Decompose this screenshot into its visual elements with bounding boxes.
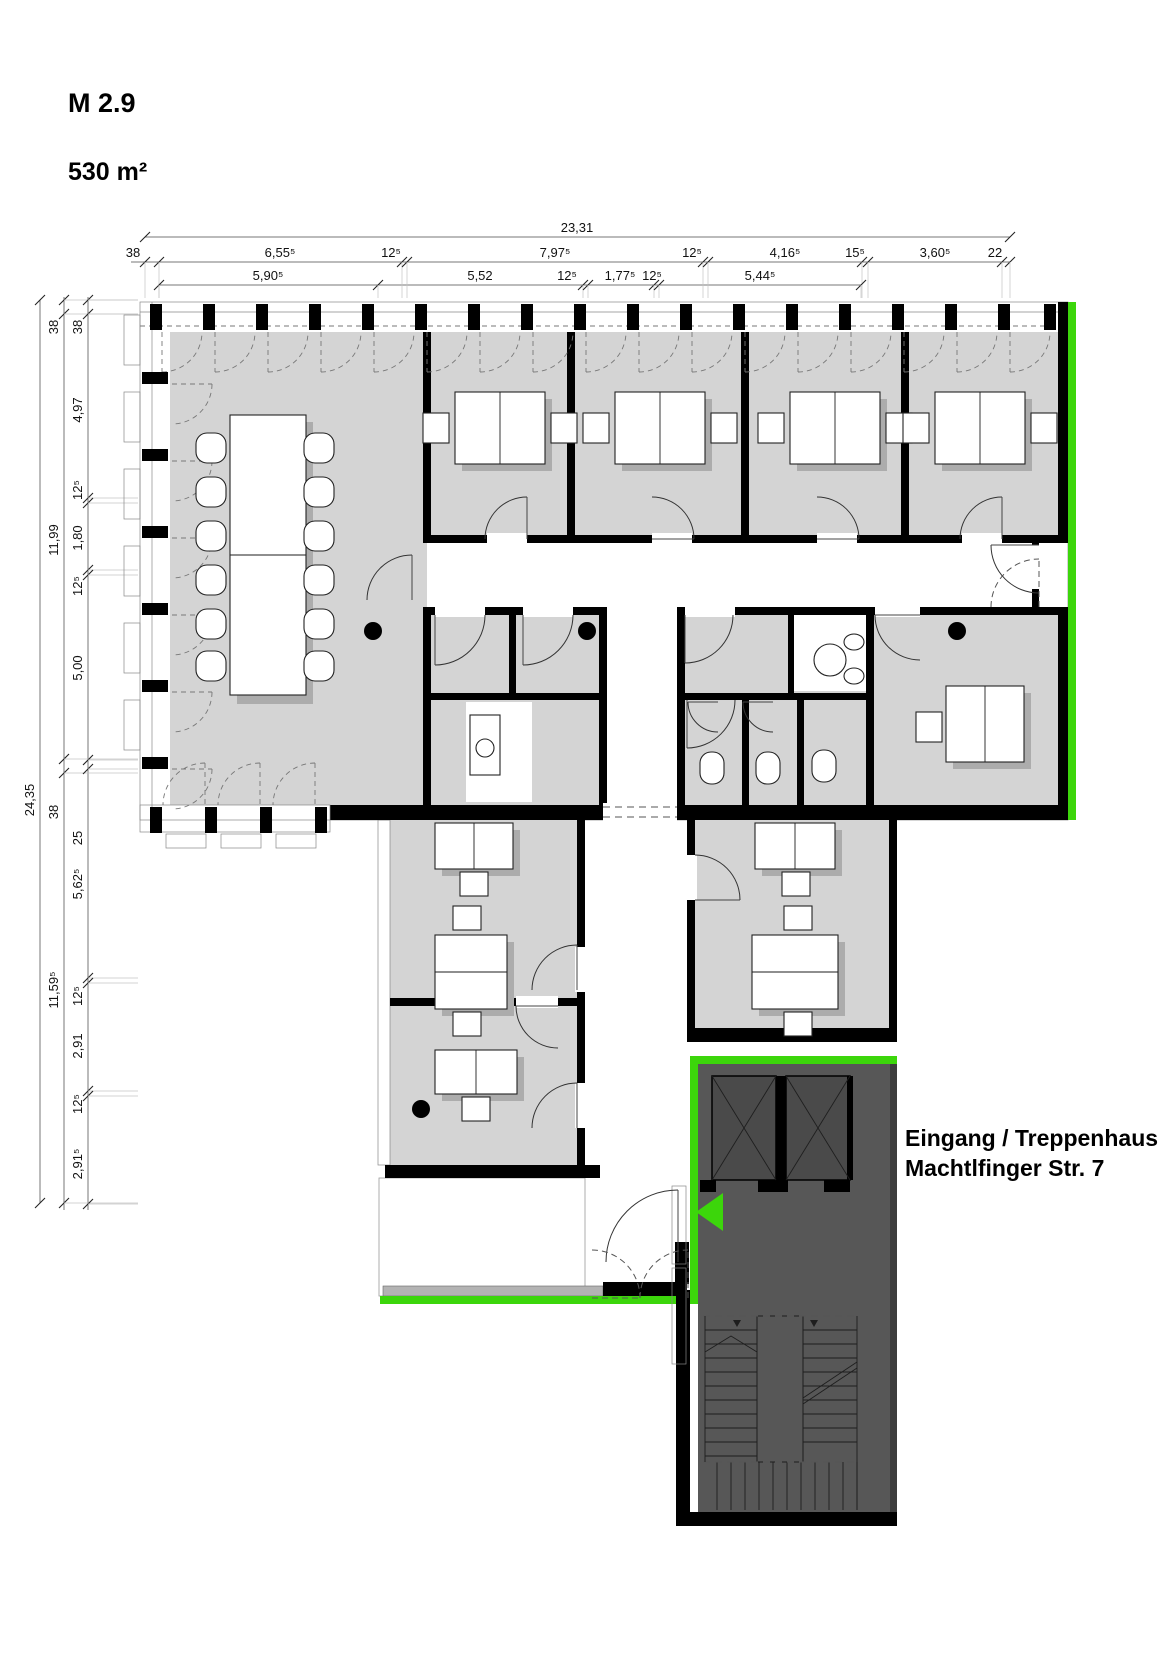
sink-icon — [844, 668, 864, 684]
corridor — [427, 543, 1058, 607]
dim-label: 22 — [988, 245, 1002, 260]
dim-label: 2,91 — [70, 1033, 85, 1058]
window-strip-left — [378, 820, 390, 1165]
toilet-icon — [756, 752, 780, 784]
left-dimension-chain: 24,35 38 11,99 38 11,59⁵ 38 4,97 12⁵ 1,8… — [22, 297, 88, 1210]
dim-label: 38 — [126, 245, 140, 260]
toilet-icon — [700, 752, 724, 784]
dim-label: 4,16⁵ — [770, 245, 801, 260]
dim-label: 3,60⁵ — [920, 245, 951, 260]
dim-label: 5,62⁵ — [70, 869, 85, 900]
floor-plan-drawing: M 2.9 530 m² 23,31 38 6,55⁵ 12⁵ 7,97⁵ 12… — [0, 0, 1170, 1655]
dim-label: 38 — [70, 320, 85, 334]
dim-label: 6,55⁵ — [265, 245, 296, 260]
conference-table — [230, 415, 313, 704]
dim-left-total: 24,35 — [22, 784, 37, 817]
window-band-top — [140, 302, 1068, 332]
top-dimension-chain: 23,31 38 6,55⁵ 12⁵ 7,97⁵ 12⁵ 4,16⁵ 15⁵ 3… — [126, 220, 1010, 285]
dim-label: 12⁵ — [557, 268, 577, 283]
lower-vestibule — [379, 1178, 585, 1296]
dim-label: 38 — [46, 320, 61, 334]
sink-icon — [814, 644, 846, 676]
dim-label: 11,99 — [46, 524, 61, 556]
dim-label: 15⁵ — [845, 245, 865, 260]
dim-label: 5,52 — [467, 268, 492, 283]
printer-icon — [476, 739, 494, 757]
toilet-icon — [812, 750, 836, 782]
dim-label: 12⁵ — [70, 986, 85, 1006]
sill-wall — [383, 1286, 603, 1296]
dim-label: 38 — [46, 805, 61, 819]
dim-label: 5,44⁵ — [745, 268, 776, 283]
area-label: 530 m² — [68, 158, 147, 186]
green-highlight-bottom — [380, 1296, 690, 1304]
dim-top-total: 23,31 — [561, 220, 594, 235]
green-highlight-right — [1068, 302, 1076, 820]
dim-label: 25 — [70, 831, 85, 845]
corridor-vertical — [607, 615, 677, 805]
green-highlight-entrance-top — [690, 1056, 897, 1064]
entrance-label-line2: Machtlfinger Str. 7 — [905, 1155, 1104, 1181]
dim-label: 11,59⁵ — [46, 972, 61, 1009]
dim-label: 12⁵ — [70, 576, 85, 596]
entrance-label-line1: Eingang / Treppenhaus — [905, 1125, 1158, 1151]
dim-label: 12⁵ — [70, 480, 85, 500]
dim-label: 12⁵ — [381, 245, 401, 260]
dim-label: 1,80 — [70, 525, 85, 550]
dim-label: 12⁵ — [682, 245, 702, 260]
page-title: M 2.9 — [68, 88, 136, 118]
dim-label: 5,00 — [70, 655, 85, 680]
floorplan-page: M 2.9 530 m² 23,31 38 6,55⁵ 12⁵ 7,97⁵ 12… — [0, 0, 1170, 1655]
dim-label: 12⁵ — [70, 1094, 85, 1114]
dim-label: 1,77⁵ — [605, 268, 636, 283]
dim-label: 7,97⁵ — [540, 245, 571, 260]
dim-label: 4,97 — [70, 397, 85, 422]
dim-label: 5,90⁵ — [253, 268, 284, 283]
sink-icon — [844, 634, 864, 650]
dim-label: 2,91⁵ — [70, 1149, 85, 1180]
green-highlight-entrance-left — [690, 1064, 698, 1304]
